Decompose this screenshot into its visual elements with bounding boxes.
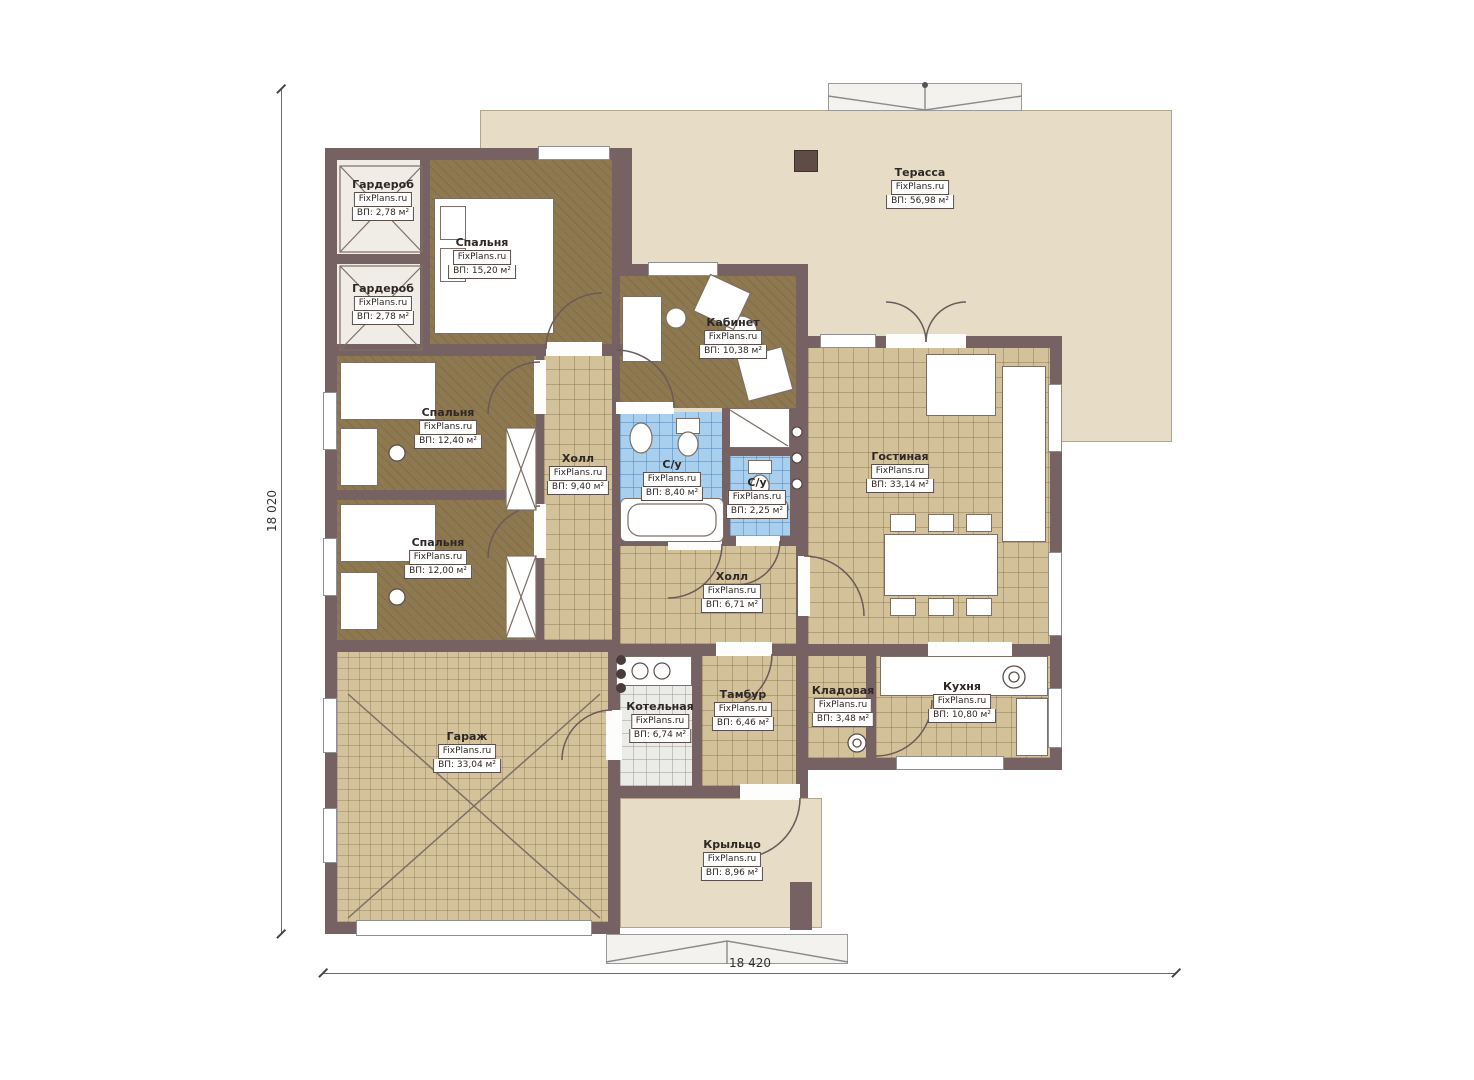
- room-name: Котельная: [626, 700, 693, 713]
- fridge: [1016, 698, 1048, 756]
- label-hall-small: Холл FixPlans.ru ВП: 9,40 м²: [547, 452, 609, 495]
- label-bedroom-low: Спальня FixPlans.ru ВП: 12,00 м²: [404, 536, 472, 579]
- room-name: Гостиная: [871, 450, 928, 463]
- bathtub: [620, 498, 724, 542]
- label-bath-big: С/у FixPlans.ru ВП: 8,40 м²: [641, 458, 703, 501]
- dining-chair-6: [966, 598, 992, 616]
- brand-box: FixPlans.ru: [703, 852, 761, 867]
- hall-small-floor: [544, 352, 612, 640]
- opening-living-kitchen: [928, 642, 1012, 656]
- brand-box: FixPlans.ru: [354, 192, 412, 207]
- window-bedroom-low: [323, 538, 337, 596]
- area-box: ВП: 10,38 м²: [699, 345, 767, 359]
- porch-right-pillar: [790, 882, 812, 930]
- wall-bath-small-top: [722, 448, 798, 456]
- dining-chair-1: [890, 514, 916, 532]
- brand-box: FixPlans.ru: [814, 698, 872, 713]
- wall-wardrobes-divider: [337, 254, 427, 264]
- label-living: Гостиная FixPlans.ru ВП: 33,14 м²: [866, 450, 934, 493]
- window-living-right-2: [1048, 552, 1062, 636]
- window-garage-1: [323, 698, 337, 753]
- dimension-line-bottom: [323, 973, 1176, 974]
- wall-bedrooms-divider: [331, 490, 540, 500]
- door-opening-bedroom-low: [534, 504, 546, 558]
- brand-box: FixPlans.ru: [419, 420, 477, 435]
- office-desk: [622, 296, 662, 362]
- dining-chair-3: [966, 514, 992, 532]
- label-wardrobe-bottom: Гардероб FixPlans.ru ВП: 2,78 м²: [352, 282, 414, 325]
- sofa: [1002, 366, 1046, 542]
- brand-box: FixPlans.ru: [933, 694, 991, 709]
- brand-box: FixPlans.ru: [643, 472, 701, 487]
- garage-door: [356, 920, 592, 936]
- label-hall-main: Холл FixPlans.ru ВП: 6,71 м²: [701, 570, 763, 613]
- brand-box: FixPlans.ru: [354, 296, 412, 311]
- dining-chair-5: [928, 598, 954, 616]
- tv-table: [926, 354, 996, 416]
- label-bath-small: С/у FixPlans.ru ВП: 2,25 м²: [726, 476, 788, 519]
- window-garage-2: [323, 808, 337, 863]
- room-name: Спальня: [422, 406, 475, 419]
- area-box: ВП: 33,04 м²: [433, 759, 501, 773]
- area-box: ВП: 8,96 м²: [701, 867, 763, 881]
- room-name: С/у: [662, 458, 681, 471]
- label-terrace: Терасса FixPlans.ru ВП: 56,98 м²: [886, 166, 954, 209]
- door-opening-vestibule-hall: [716, 642, 772, 656]
- desk-low: [340, 572, 378, 630]
- wall-wing-bottom: [325, 640, 620, 652]
- area-box: ВП: 2,78 м²: [352, 207, 414, 221]
- window-kitchen-right: [1048, 688, 1062, 748]
- label-bedroom-mid: Спальня FixPlans.ru ВП: 12,40 м²: [414, 406, 482, 449]
- door-opening-hall-living: [798, 556, 810, 616]
- brand-box: FixPlans.ru: [728, 490, 786, 505]
- boiler-unit: [616, 656, 692, 686]
- dimension-bottom-value: 18 420: [729, 956, 771, 970]
- window-office-top: [648, 262, 718, 276]
- area-box: ВП: 3,48 м²: [812, 713, 874, 727]
- door-opening-terrace: [886, 334, 966, 348]
- room-name: Гардероб: [352, 178, 414, 191]
- window-living-top: [820, 334, 876, 348]
- area-box: ВП: 12,00 м²: [404, 565, 472, 579]
- room-name: Гардероб: [352, 282, 414, 295]
- brand-box: FixPlans.ru: [549, 466, 607, 481]
- area-box: ВП: 33,14 м²: [866, 479, 934, 493]
- brand-box: FixPlans.ru: [871, 464, 929, 479]
- area-box: ВП: 15,20 м²: [448, 265, 516, 279]
- label-porch: Крыльцо FixPlans.ru ВП: 8,96 м²: [701, 838, 763, 881]
- label-vestibule: Тамбур FixPlans.ru ВП: 6,46 м²: [712, 688, 774, 731]
- area-box: ВП: 56,98 м²: [886, 195, 954, 209]
- brand-box: FixPlans.ru: [438, 744, 496, 759]
- window-living-right-1: [1048, 384, 1062, 452]
- window-bedroom-mid: [323, 392, 337, 450]
- door-opening-office: [616, 402, 674, 414]
- area-box: ВП: 8,40 м²: [641, 487, 703, 501]
- wall-corridor-right: [612, 276, 620, 642]
- brand-box: FixPlans.ru: [891, 180, 949, 195]
- dining-chair-2: [928, 514, 954, 532]
- garage-floor: [337, 652, 608, 922]
- room-name: Крыльцо: [703, 838, 761, 851]
- label-bedroom-master: Спальня FixPlans.ru ВП: 15,20 м²: [448, 236, 516, 279]
- area-box: ВП: 12,40 м²: [414, 435, 482, 449]
- label-kitchen: Кухня FixPlans.ru ВП: 10,80 м²: [928, 680, 996, 723]
- dimension-line-left: [281, 88, 282, 934]
- dimension-left-value: 18 020: [265, 490, 279, 532]
- door-opening-entrance: [740, 784, 800, 800]
- wall-wardrobe-right: [420, 160, 430, 352]
- room-name: С/у: [747, 476, 766, 489]
- label-boiler: Котельная FixPlans.ru ВП: 6,74 м²: [626, 700, 693, 743]
- floor-plan-canvas: Терасса FixPlans.ru ВП: 56,98 м² Гардеро…: [0, 0, 1474, 1080]
- desk-mid: [340, 428, 378, 486]
- area-box: ВП: 6,71 м²: [701, 599, 763, 613]
- toilet-small-tank: [748, 460, 772, 474]
- window-kitchen-bottom: [896, 756, 1004, 770]
- area-box: ВП: 9,40 м²: [547, 481, 609, 495]
- door-opening-bedroom-mid: [534, 360, 546, 414]
- brand-box: FixPlans.ru: [409, 550, 467, 565]
- area-box: ВП: 6,74 м²: [629, 729, 691, 743]
- room-name: Терасса: [895, 166, 946, 179]
- brand-box: FixPlans.ru: [704, 330, 762, 345]
- room-name: Холл: [716, 570, 748, 583]
- label-garage: Гараж FixPlans.ru ВП: 33,04 м²: [433, 730, 501, 773]
- toilet-big-tank: [676, 418, 700, 434]
- area-box: ВП: 2,78 м²: [352, 311, 414, 325]
- room-name: Кабинет: [706, 316, 759, 329]
- door-opening-bath-small: [736, 536, 780, 546]
- label-office: Кабинет FixPlans.ru ВП: 10,38 м²: [699, 316, 767, 359]
- room-name: Гараж: [447, 730, 488, 743]
- room-name: Холл: [562, 452, 594, 465]
- bed-master-pillow-1: [440, 206, 466, 240]
- area-box: ВП: 6,46 м²: [712, 717, 774, 731]
- room-name: Кладовая: [812, 684, 874, 697]
- area-box: ВП: 10,80 м²: [928, 709, 996, 723]
- area-box: ВП: 2,25 м²: [726, 505, 788, 519]
- room-name: Кухня: [943, 680, 981, 693]
- plumbing-shaft: [790, 408, 804, 540]
- dining-chair-4: [890, 598, 916, 616]
- label-wardrobe-top: Гардероб FixPlans.ru ВП: 2,78 м²: [352, 178, 414, 221]
- roof-valley-top: [828, 83, 1022, 111]
- brand-box: FixPlans.ru: [631, 714, 689, 729]
- wall-wing-right-upper: [612, 148, 632, 276]
- door-opening-garage-boiler: [606, 710, 622, 760]
- window-wing-top: [538, 146, 610, 160]
- chimney: [794, 150, 818, 172]
- room-name: Спальня: [412, 536, 465, 549]
- room-name: Тамбур: [720, 688, 767, 701]
- room-name: Спальня: [456, 236, 509, 249]
- brand-box: FixPlans.ru: [703, 584, 761, 599]
- dining-table: [884, 534, 998, 596]
- roof-valley-bottom: [606, 934, 848, 964]
- shower-tray: [728, 408, 790, 448]
- door-opening-bedroom-master: [546, 342, 602, 356]
- brand-box: FixPlans.ru: [714, 702, 772, 717]
- label-storage: Кладовая FixPlans.ru ВП: 3,48 м²: [812, 684, 874, 727]
- brand-box: FixPlans.ru: [453, 250, 511, 265]
